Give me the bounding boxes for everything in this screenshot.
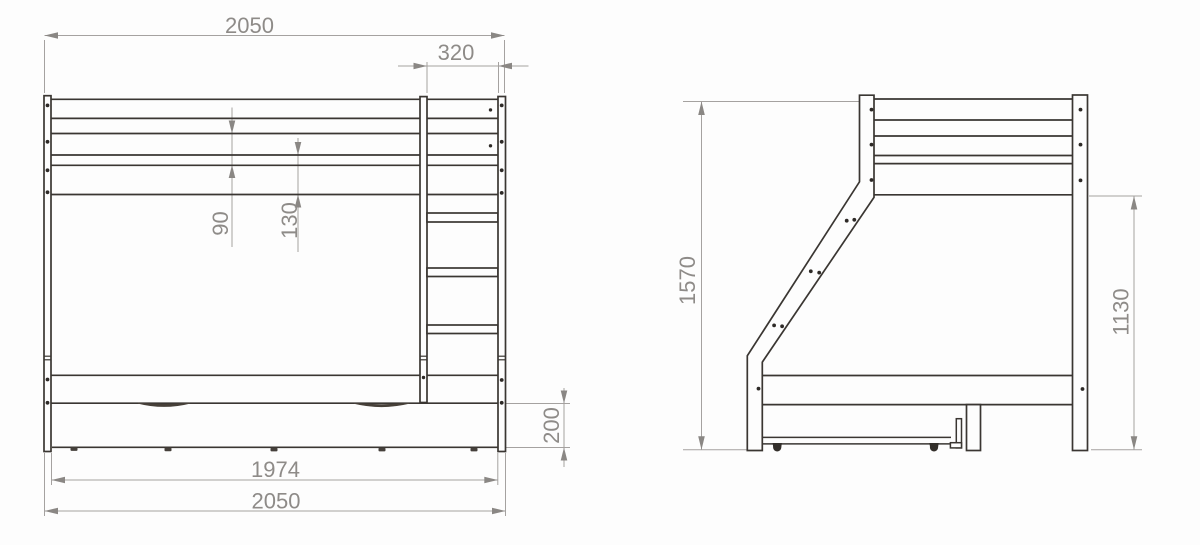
svg-text:1570: 1570 <box>675 256 700 305</box>
svg-text:1130: 1130 <box>1109 288 1134 335</box>
svg-text:2050: 2050 <box>225 13 274 38</box>
svg-text:2050: 2050 <box>252 489 301 514</box>
svg-text:90: 90 <box>208 211 233 235</box>
svg-text:200: 200 <box>539 407 564 444</box>
svg-text:1974: 1974 <box>251 457 300 482</box>
svg-text:320: 320 <box>438 40 475 65</box>
svg-text:130: 130 <box>277 202 302 239</box>
